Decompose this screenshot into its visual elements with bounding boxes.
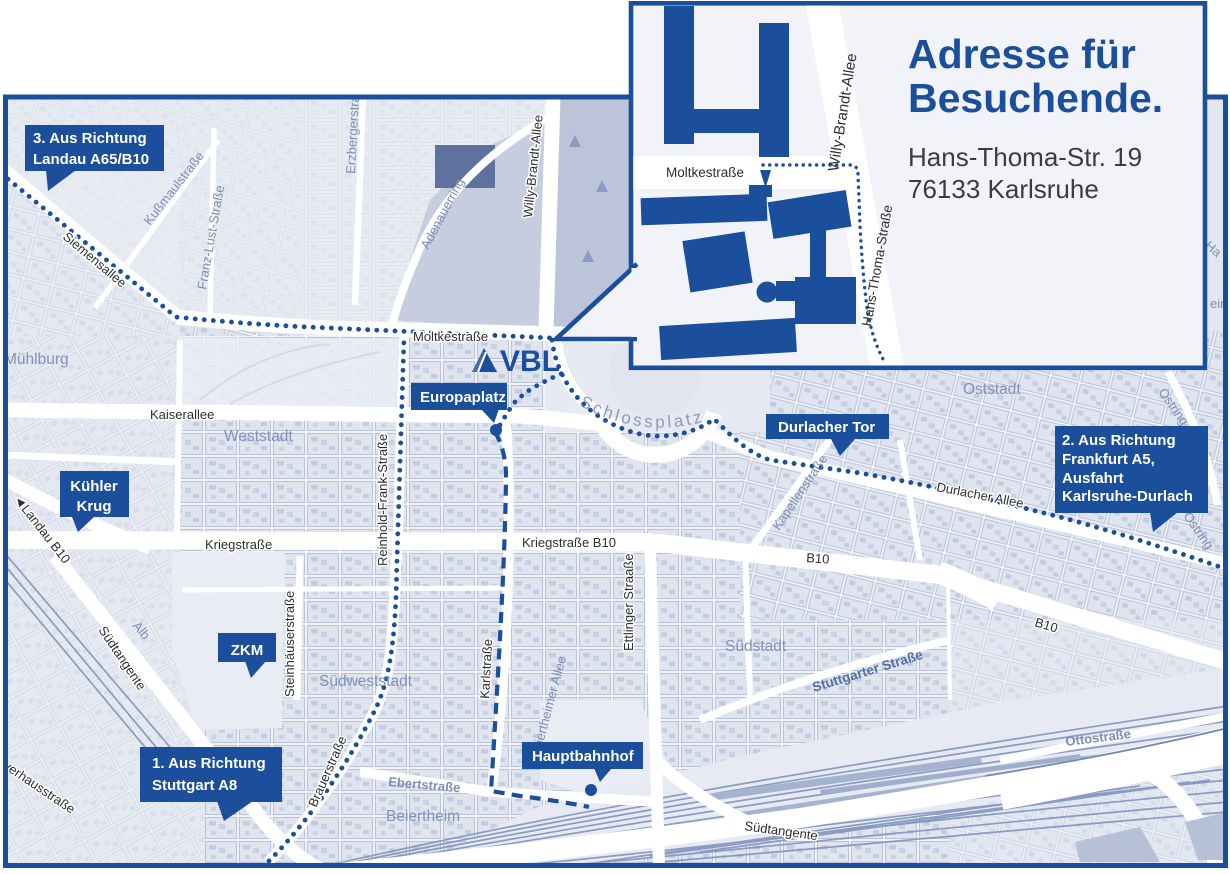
svg-text:Karlstraße: Karlstraße: [477, 638, 495, 699]
svg-text:Stuttgart A8: Stuttgart A8: [152, 777, 237, 794]
svg-text:VBL: VBL: [500, 345, 560, 378]
svg-text:Kriegstraße B10: Kriegstraße B10: [522, 535, 616, 550]
svg-text:Ettlinger Straaße: Ettlinger Straaße: [621, 553, 636, 651]
svg-text:Reinhold-Frank-Straße: Reinhold-Frank-Straße: [375, 434, 390, 566]
svg-text:B10: B10: [806, 550, 830, 567]
svg-text:Hans-Thoma-Str. 19: Hans-Thoma-Str. 19: [908, 142, 1142, 172]
svg-text:Krug: Krug: [77, 498, 112, 515]
svg-text:1. Aus Richtung: 1. Aus Richtung: [152, 755, 266, 772]
svg-text:Ausfahrt: Ausfahrt: [1062, 470, 1124, 487]
svg-text:Europaplatz: Europaplatz: [420, 389, 506, 406]
svg-text:Landau A65/B10: Landau A65/B10: [33, 151, 149, 168]
svg-text:Oststadt: Oststadt: [963, 381, 1021, 398]
svg-text:Moltkestraße: Moltkestraße: [666, 165, 744, 180]
svg-text:Südstadt: Südstadt: [725, 638, 787, 655]
svg-text:Kühler: Kühler: [70, 478, 118, 495]
svg-text:Weststadt: Weststadt: [224, 428, 293, 445]
svg-text:Kriegstraße: Kriegstraße: [205, 537, 272, 552]
svg-text:Kaiserallee: Kaiserallee: [150, 407, 214, 422]
svg-text:Frankfurt A5,: Frankfurt A5,: [1062, 451, 1155, 468]
svg-text:76133 Karlsruhe: 76133 Karlsruhe: [908, 174, 1099, 204]
svg-text:Mühlburg: Mühlburg: [4, 351, 69, 368]
svg-text:Adresse für: Adresse für: [908, 31, 1136, 77]
svg-text:Beiertheim: Beiertheim: [386, 808, 460, 825]
svg-text:Karlsruhe-Durlach: Karlsruhe-Durlach: [1062, 488, 1193, 505]
svg-text:Südweststadt: Südweststadt: [319, 673, 413, 690]
svg-text:Hauptbahnhof: Hauptbahnhof: [532, 748, 635, 765]
svg-text:2. Aus Richtung: 2. Aus Richtung: [1062, 432, 1176, 449]
svg-text:Besuchende.: Besuchende.: [908, 75, 1163, 121]
svg-text:ZKM: ZKM: [231, 642, 264, 659]
svg-text:Durlacher Tor: Durlacher Tor: [778, 419, 875, 436]
svg-text:Steinhäuserstraße: Steinhäuserstraße: [282, 591, 297, 697]
svg-text:Moltkestraße: Moltkestraße: [413, 329, 488, 344]
svg-text:3. Aus Richtung: 3. Aus Richtung: [33, 130, 147, 147]
